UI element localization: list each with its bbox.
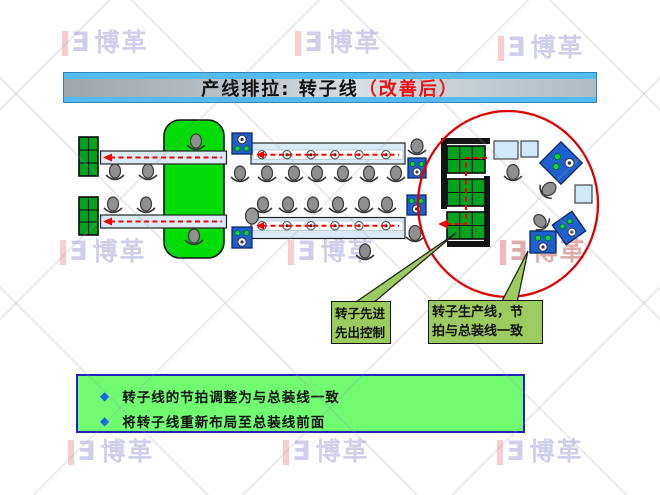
operator-icon xyxy=(285,166,303,182)
pallet-square xyxy=(521,141,538,157)
roller-icon xyxy=(246,208,259,224)
operator-icon xyxy=(106,164,124,180)
callout-takt-line1: 转子生产线，节 xyxy=(432,303,539,322)
operator-icon xyxy=(378,197,396,213)
title-main: 产线排拉: 转子线 xyxy=(201,79,358,100)
callout-takt-sync: 转子生产线，节 拍与总装线一致 xyxy=(428,300,543,344)
operator-icon xyxy=(304,197,322,213)
callout-fifo-line2: 先出控制 xyxy=(335,323,387,342)
operator-icon xyxy=(139,164,157,180)
operator-icon xyxy=(137,197,155,213)
material-table xyxy=(79,137,98,176)
callout-fifo-control: 转子先进 先出控制 xyxy=(331,301,391,344)
page-title: 产线排拉: 转子线（改善后） xyxy=(201,75,458,101)
machine-icon xyxy=(530,231,556,253)
operator-icon xyxy=(356,244,374,260)
rotor-table xyxy=(447,146,485,173)
operator-icon xyxy=(308,166,326,182)
summary-item: ◆ 转子线的节拍调整为与总装线一致 xyxy=(78,383,523,408)
operator-icon xyxy=(231,166,249,182)
machine-icon xyxy=(407,195,426,215)
callout-takt-line2: 拍与总装线一致 xyxy=(432,322,539,341)
diamond-bullet-icon: ◆ xyxy=(100,414,109,428)
machine-icon xyxy=(232,227,252,248)
title-highlight: （改善后） xyxy=(359,79,459,100)
operator-icon xyxy=(387,166,405,182)
callout-leader xyxy=(353,233,456,304)
machine-icon xyxy=(540,142,582,184)
summary-item-text: 将转子线重新布局至总装线前面 xyxy=(122,411,325,431)
operator-icon xyxy=(355,197,373,213)
summary-box: ◆ 转子线的节拍调整为与总装线一致 ◆ 将转子线重新布局至总装线前面 xyxy=(76,374,525,433)
operator-icon xyxy=(334,166,352,182)
pallet-square xyxy=(575,185,592,203)
pallet-square xyxy=(494,141,518,159)
assembly-conveyor-lower xyxy=(251,218,405,239)
summary-item: ◆ 将转子线重新布局至总装线前面 xyxy=(78,408,523,433)
operator-icon xyxy=(329,197,347,213)
operator-icon xyxy=(529,210,553,233)
conveyor-lower-left xyxy=(101,215,227,228)
material-table xyxy=(79,197,98,235)
operator-icon xyxy=(104,197,122,213)
machine-icon xyxy=(232,133,252,154)
operator-icon xyxy=(279,197,297,213)
operator-icon xyxy=(258,166,276,182)
diamond-bullet-icon: ◆ xyxy=(100,389,109,403)
callout-fifo-line1: 转子先进 xyxy=(335,304,387,323)
summary-item-text: 转子线的节拍调整为与总装线一致 xyxy=(122,386,340,406)
slide-title-bar: 产线排拉: 转子线（改善后） xyxy=(63,72,597,103)
machine-icon xyxy=(552,211,585,244)
operator-icon xyxy=(408,139,426,155)
slide-canvas: Ǝ博革 Ǝ博革 Ǝ博革 Ǝ博革 Ǝ博革 Ǝ博革 Ǝ博革 Ǝ博革 Ǝ博革 产线排拉… xyxy=(0,0,660,495)
operator-icon xyxy=(504,165,522,181)
conveyor-upper-left xyxy=(101,151,227,164)
operator-icon xyxy=(360,166,378,182)
assembly-conveyor-upper xyxy=(251,143,405,164)
